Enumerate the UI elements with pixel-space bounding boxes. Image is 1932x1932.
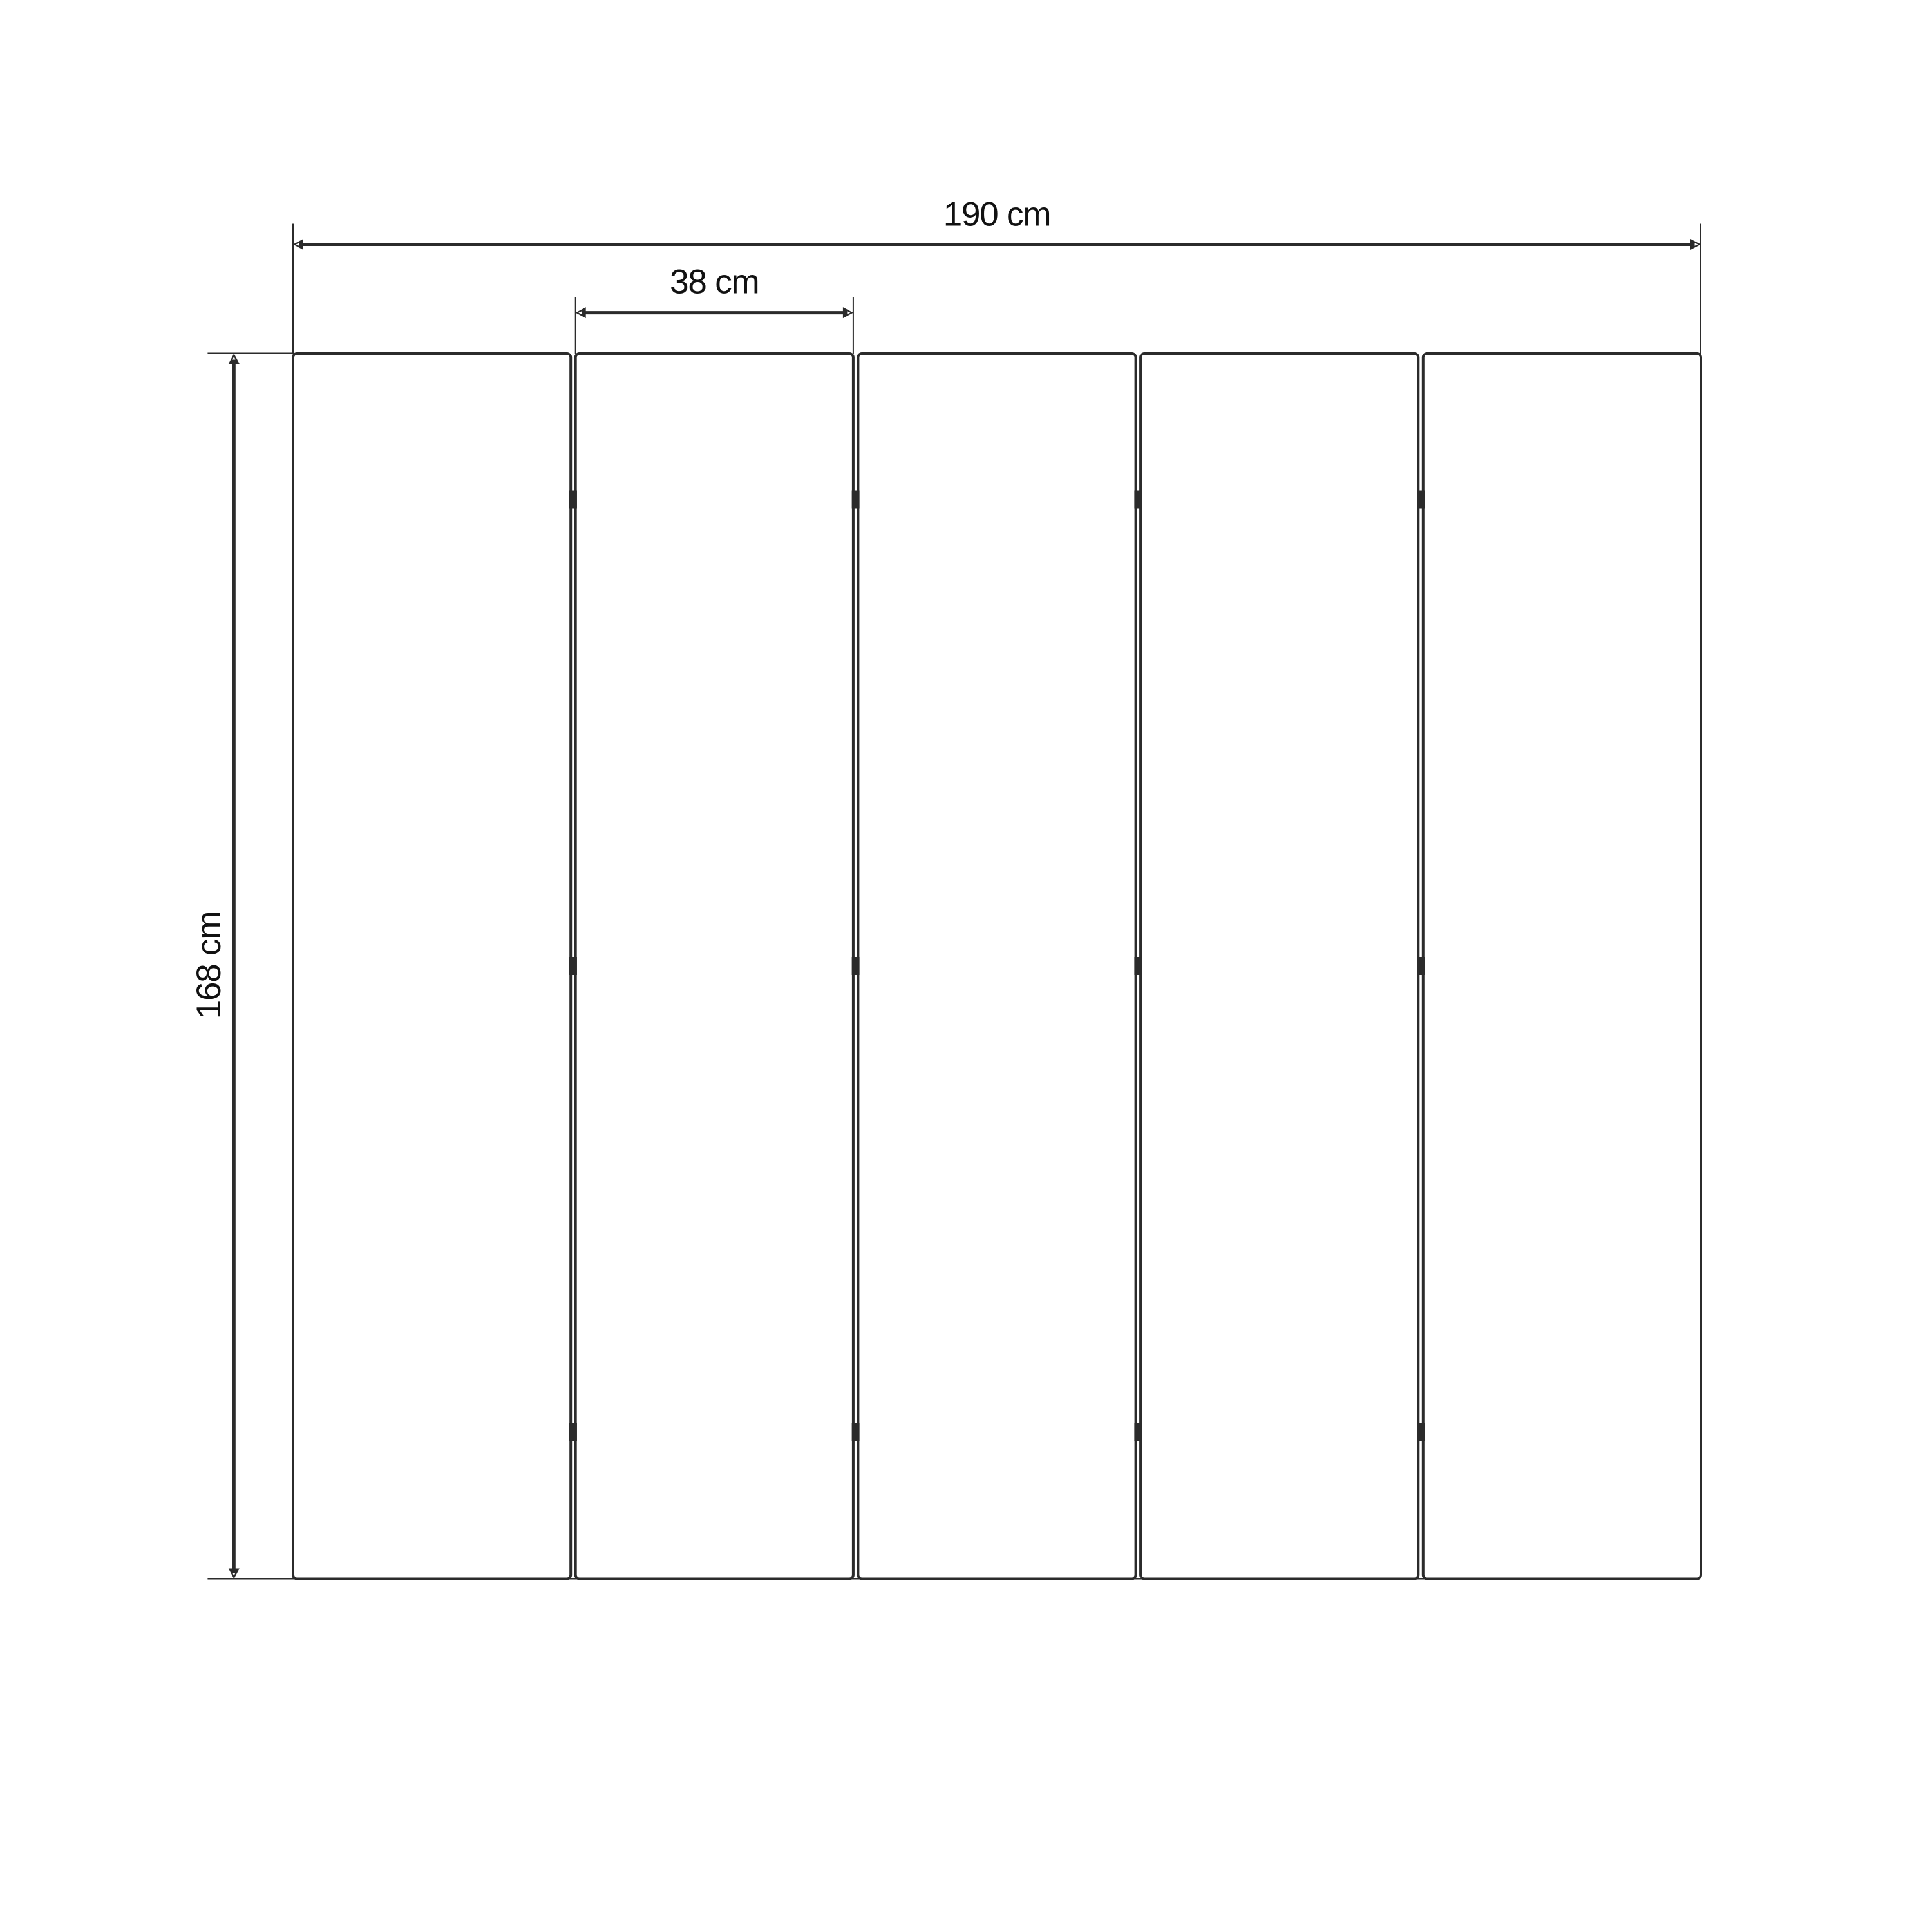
- svg-text:190 cm: 190 cm: [943, 196, 1051, 234]
- svg-text:38 cm: 38 cm: [670, 263, 759, 301]
- svg-text:168 cm: 168 cm: [190, 912, 228, 1019]
